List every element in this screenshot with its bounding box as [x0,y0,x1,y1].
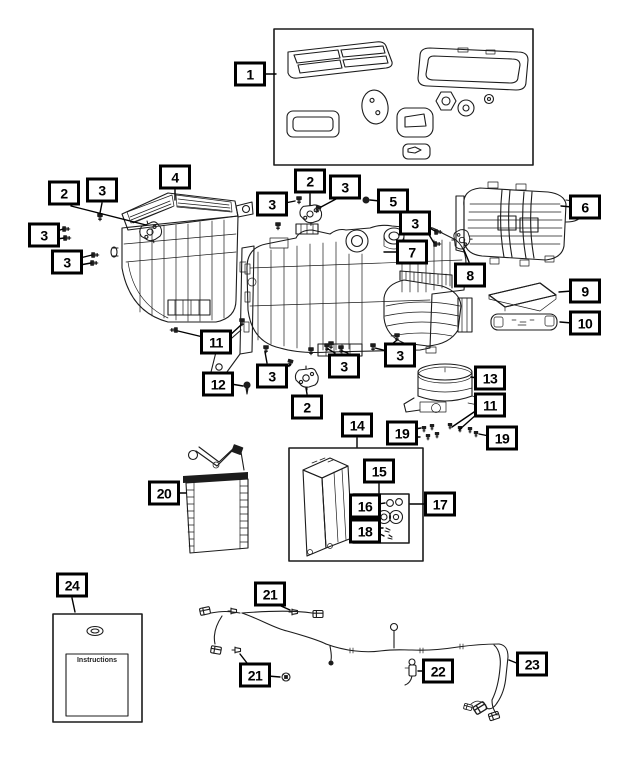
parts-diagram: 1423233563373891011333131221114191915201… [0,0,640,777]
callout-15-box-27[interactable]: 15 [363,459,395,484]
wedge-seal [397,108,433,137]
gasket-kit-box [274,29,533,165]
oval-gasket [360,88,390,125]
blower-motor-drawing [404,364,480,413]
instruction-sheet-label: Instructions [66,657,128,664]
o-ring-2 [396,499,403,506]
callout-23-box-34[interactable]: 23 [516,652,548,677]
main-housing-drawing [240,224,466,356]
callout-3-box-9[interactable]: 3 [399,211,431,236]
callout-10-box-15[interactable]: 10 [569,311,601,336]
instruction-sheet-drawing [53,614,142,722]
callout-3-box-18[interactable]: 3 [328,354,360,379]
callout-14-box-24[interactable]: 14 [341,413,373,438]
callout-21-box-36[interactable]: 21 [239,663,271,688]
callout-4-box-1[interactable]: 4 [159,165,191,190]
small-bottom-seal [403,144,430,159]
cabin-filter-drawing [489,283,556,311]
temp-sensor-drawing [405,659,416,685]
callout-3-box-3[interactable]: 3 [86,178,118,203]
callout-8-box-13[interactable]: 8 [454,263,486,288]
evaporator-drawing [303,458,352,556]
callout-19-box-25[interactable]: 19 [386,421,418,446]
callout-22-box-35[interactable]: 22 [422,659,454,684]
actuator-bottom-drawing [295,366,318,390]
callout-12-box-21[interactable]: 12 [202,372,234,397]
fitting-screws [385,528,392,539]
callout-7-box-11[interactable]: 7 [396,240,428,265]
callout-16-box-29[interactable]: 16 [349,494,381,519]
small-rect-seal [287,111,339,137]
callout-9-box-14[interactable]: 9 [569,279,601,304]
callout-2-box-2[interactable]: 2 [48,181,80,206]
filter-door-drawing [491,314,557,330]
right-housing-drawing [456,182,582,266]
callout-13-box-20[interactable]: 13 [474,366,506,391]
screw-12 [244,382,250,394]
callout-3-box-12[interactable]: 3 [51,250,83,275]
hex-nut-seal [436,92,456,110]
callout-3-box-5[interactable]: 3 [256,192,288,217]
callout-2-box-4[interactable]: 2 [294,169,326,194]
push-rivet [282,673,290,681]
callout-3-box-10[interactable]: 3 [28,223,60,248]
callout-6-box-8[interactable]: 6 [569,195,601,220]
grille-seal [288,42,392,78]
callout-11-box-16[interactable]: 11 [200,330,232,355]
callout-1-box-0[interactable]: 1 [234,62,266,87]
callout-20-box-28[interactable]: 20 [148,481,180,506]
callout-24-box-32[interactable]: 24 [56,573,88,598]
callout-2-box-22[interactable]: 2 [291,395,323,420]
o-ring-1 [387,500,394,507]
large-duct-seal [418,48,528,90]
left-housing-drawing [111,193,253,322]
callout-3-box-6[interactable]: 3 [329,175,361,200]
callout-3-box-17[interactable]: 3 [256,364,288,389]
heater-core-drawing [183,445,248,553]
callout-21-box-33[interactable]: 21 [254,582,286,607]
callout-17-box-30[interactable]: 17 [424,492,456,517]
callout-11-box-23[interactable]: 11 [474,393,506,418]
grommet-drawing [363,197,370,204]
callout-18-box-31[interactable]: 18 [349,519,381,544]
round-grommet [458,95,494,117]
callout-19-box-26[interactable]: 19 [486,426,518,451]
callout-3-box-19[interactable]: 3 [384,343,416,368]
